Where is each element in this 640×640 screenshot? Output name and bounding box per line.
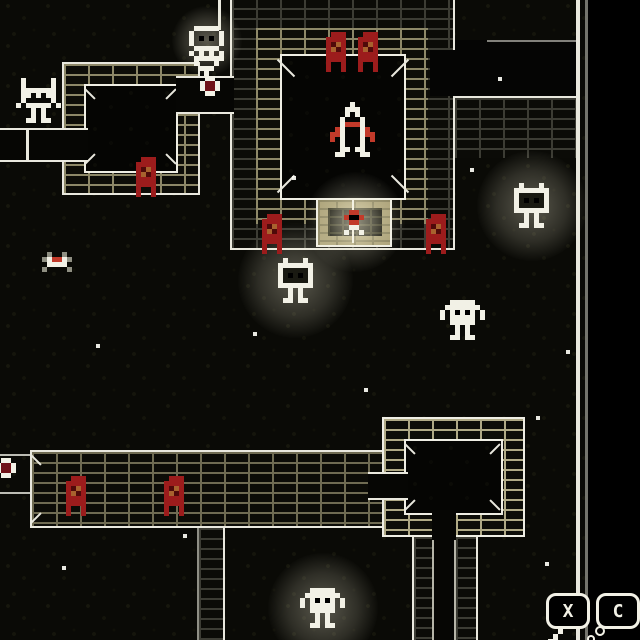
star-particle <box>292 176 296 180</box>
star-particle <box>545 562 549 566</box>
corridor-east-floor <box>455 40 576 96</box>
entity-pedestal <box>189 56 194 61</box>
glowbot-glow <box>477 151 587 261</box>
bottom-room-floor <box>404 439 503 515</box>
entity-glowbot <box>514 183 519 188</box>
star-particle <box>253 332 257 336</box>
entity-banner <box>426 214 431 219</box>
wall-shaft-west <box>412 537 434 640</box>
slab-west-line-top <box>0 454 32 456</box>
star-particle <box>470 168 474 172</box>
boundary-line-gray <box>585 0 588 640</box>
entity-banner <box>326 32 331 37</box>
entity-gem <box>200 76 205 81</box>
boundary-line-white <box>576 0 580 640</box>
passage-left-room-east <box>176 76 234 114</box>
wall-bottom-slab <box>30 450 400 528</box>
passage-bottom-room-south <box>432 510 456 540</box>
entity-banner <box>66 476 71 481</box>
entity-gem <box>0 458 1 463</box>
shaft-floor <box>434 537 454 640</box>
star-particle <box>62 566 66 570</box>
entity-banner <box>358 32 363 37</box>
watcher-glow <box>172 6 242 76</box>
entity-watcher <box>189 26 194 31</box>
wall-shaft-east <box>454 537 478 640</box>
game-viewport[interactable]: X C <box>0 0 640 640</box>
left-room-floor <box>84 84 178 173</box>
speech-tail-icon <box>558 629 563 634</box>
star-particle <box>96 344 100 348</box>
wall-lower-left <box>197 528 225 640</box>
entity-rocket <box>330 102 335 107</box>
button-c-label: C <box>613 601 624 622</box>
entity-imp <box>344 210 349 215</box>
entity-banner <box>136 157 141 162</box>
button-x-label: X <box>563 601 574 622</box>
map-void <box>588 0 640 640</box>
passage-rocket-room-east <box>430 50 457 96</box>
button-c[interactable]: C <box>596 593 640 629</box>
entity-glowbot <box>278 258 283 263</box>
entity-blob <box>440 300 445 305</box>
imp-glow <box>327 195 382 250</box>
wall-corridor-east <box>455 96 576 158</box>
entity-banner <box>164 476 169 481</box>
passage-left-room-west <box>0 128 88 162</box>
button-x[interactable]: X <box>546 593 590 629</box>
passage-bottom-room-west <box>368 472 408 500</box>
star-particle <box>566 350 570 354</box>
corridor-east-topline <box>487 40 576 42</box>
thought-dot-icon <box>587 635 595 640</box>
star-particle <box>536 416 540 420</box>
thought-dot-icon <box>595 626 605 636</box>
passage-west-cap <box>26 128 29 162</box>
entity-spider <box>42 252 47 257</box>
entity-banner <box>262 214 267 219</box>
star-particle <box>498 77 502 81</box>
star-particle <box>364 388 368 392</box>
entity-robot <box>16 78 21 83</box>
star-particle <box>183 534 187 538</box>
blob-glow <box>268 553 378 640</box>
slab-west-line-bottom <box>0 492 32 494</box>
entity-blob <box>300 588 305 593</box>
